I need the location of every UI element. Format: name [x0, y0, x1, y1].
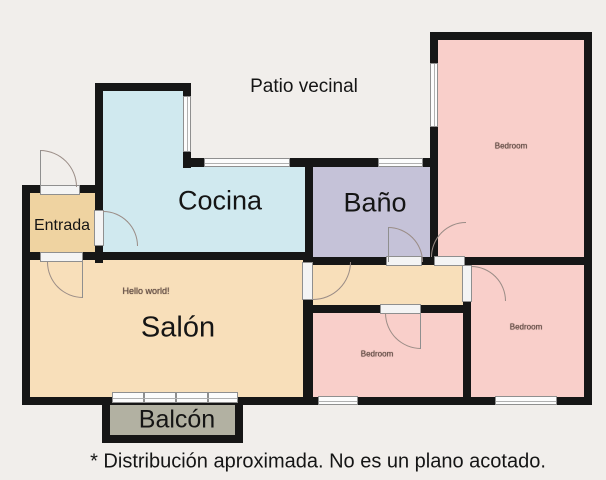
wall-cocina-left — [95, 83, 103, 191]
room-label-bedroom-bottom-center: Bedroom — [361, 350, 393, 359]
window-bedroomA-left — [430, 63, 438, 127]
door-leaf-entrance — [40, 150, 41, 187]
wall-balcon-bottom — [102, 435, 243, 443]
door-jamb-bedroomA — [434, 256, 465, 266]
footnote: * Distribución aproximada. No es un plan… — [90, 451, 546, 474]
door-leaf-entrada-salon — [82, 262, 83, 298]
wall-outer-right — [584, 32, 592, 405]
room-label-cocina: Cocina — [178, 186, 262, 217]
room-label-balcon: Balcón — [139, 406, 215, 435]
wall-outer-left — [22, 185, 30, 405]
door-leaf-bedroomB — [420, 313, 421, 349]
door-jamb-salon-hall — [302, 262, 313, 300]
wall-cocina-top — [95, 83, 191, 91]
door-arc-entrance — [40, 150, 77, 187]
room-cocina-upper — [95, 83, 191, 168]
window-divider — [207, 393, 209, 402]
floor-plan: Patio vecinal Cocina Baño Entrada Salón … — [0, 0, 606, 480]
wall-bedroomA-top — [430, 32, 592, 40]
room-label-bano: Baño — [343, 188, 406, 219]
wall-cocina-bano-divider — [305, 160, 313, 260]
wall-bedroomA-bottom — [462, 257, 592, 265]
room-label-bedroom-bottom-right: Bedroom — [510, 323, 542, 332]
window-cocina-right — [183, 96, 191, 152]
patio-label: Patio vecinal — [250, 76, 358, 98]
room-label-salon: Salón — [141, 312, 215, 345]
door-leaf-bano — [388, 227, 389, 262]
room-label-bedroom-top-right: Bedroom — [495, 142, 527, 151]
window-divider — [175, 393, 177, 402]
window-bedroomC-bottom — [495, 396, 557, 405]
salon-annotation: Hello world! — [122, 286, 169, 296]
room-label-entrada: Entrada — [34, 217, 90, 235]
window-bano-top — [378, 158, 423, 167]
window-divider — [143, 393, 145, 402]
window-cocina-top — [204, 158, 290, 167]
door-jamb-entrada-salon — [40, 252, 83, 262]
wall-balcon-right — [235, 397, 243, 443]
window-balcon-sliding-door — [112, 392, 238, 403]
window-bedroomB-bottom — [318, 396, 358, 405]
